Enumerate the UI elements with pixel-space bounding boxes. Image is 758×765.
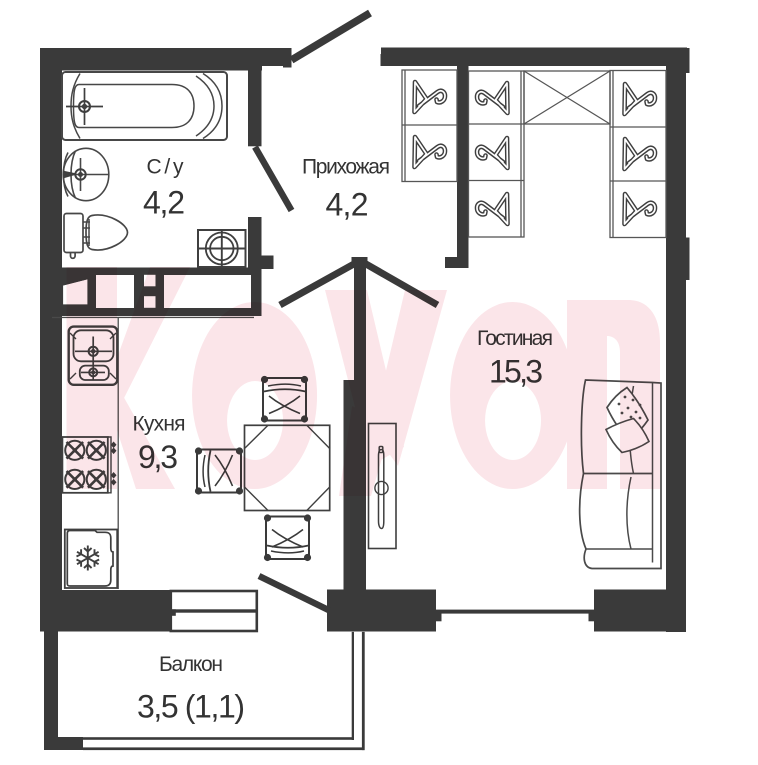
- svg-text:4,2: 4,2: [326, 187, 369, 223]
- svg-text:Балкон: Балкон: [159, 653, 223, 676]
- svg-text:Прихожая: Прихожая: [302, 156, 390, 179]
- svg-text:Кухня: Кухня: [133, 413, 186, 436]
- svg-text:С/у: С/у: [147, 156, 185, 179]
- svg-text:15,3: 15,3: [489, 354, 543, 390]
- svg-text:9,3: 9,3: [138, 439, 178, 475]
- svg-text:4,2: 4,2: [143, 185, 185, 221]
- svg-text:Гостиная: Гостиная: [477, 327, 553, 350]
- svg-text:3,5 (1,1): 3,5 (1,1): [137, 689, 245, 725]
